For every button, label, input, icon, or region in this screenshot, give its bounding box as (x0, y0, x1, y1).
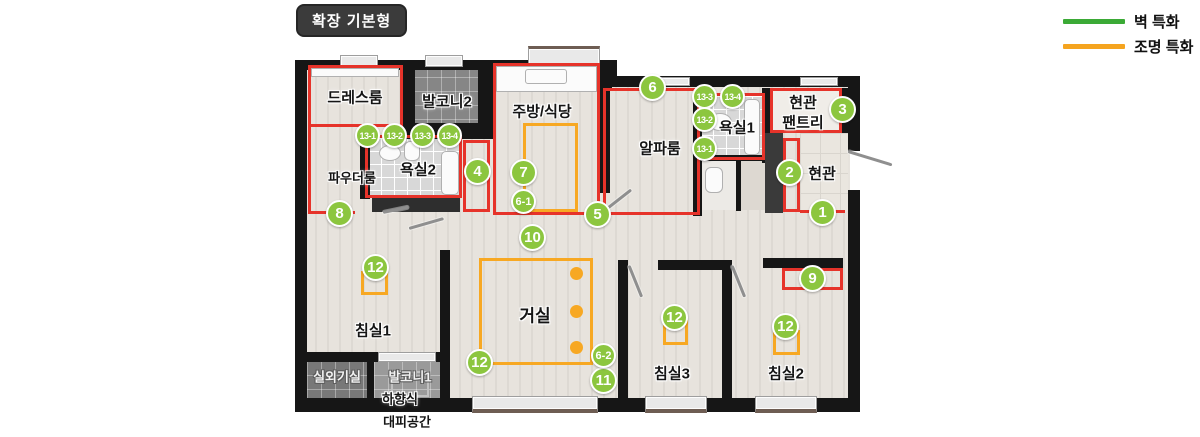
badge-13-4-bath1: 13-4 (720, 84, 745, 109)
wall-right-lower (848, 190, 860, 412)
wall-toilet-closet (736, 161, 741, 211)
badge-4: 4 (464, 158, 491, 185)
entrance-door-swing (848, 150, 893, 166)
badge-12-bed1: 12 (362, 254, 389, 281)
room-label-living: 거실 (519, 302, 550, 327)
wall-feature-swatch (1063, 19, 1125, 24)
window-bed2-bottom (755, 396, 817, 413)
badge-8: 8 (326, 200, 353, 227)
window-bed3-bottom (645, 396, 707, 413)
badge-13-3-bath2: 13-3 (410, 123, 435, 148)
floor-closet (740, 160, 767, 210)
badge-12-bed3: 12 (661, 304, 688, 331)
room-label-dressroom: 드레스룸 (327, 87, 382, 108)
room-label-outdoor-unit: 실외기실 (313, 367, 361, 386)
window-living-bottom (472, 396, 598, 413)
light-feature-label: 조명 특화 (1134, 36, 1193, 57)
room-label-bed2: 침실2 (768, 363, 804, 384)
badge-11: 11 (590, 367, 617, 394)
room-label-kitchen: 주방/식당 (512, 101, 571, 122)
wall-bed2-top (763, 258, 843, 268)
window-balcony2-top (425, 55, 463, 67)
wall-balcony2-kitchen (478, 60, 493, 127)
floor-plan: 드레스룸 발코니2 주방/식당 알파룸 현관 팬트리 욕실1 욕실2 파우더룸 … (295, 55, 860, 413)
badge-13-2-bath2: 13-2 (382, 123, 407, 148)
badge-13-2-bath1: 13-2 (692, 107, 717, 132)
orange-dot-3 (570, 341, 583, 354)
toilet-room-toilet (705, 167, 723, 193)
room-label-evac-line2: 대피공간 (383, 412, 431, 431)
badge-13-3-bath1: 13-3 (692, 84, 717, 109)
badge-13-1-bath1: 13-1 (692, 136, 717, 161)
badge-10: 10 (519, 224, 546, 251)
badge-13-4-bath2: 13-4 (437, 123, 462, 148)
badge-6: 6 (639, 74, 666, 101)
window-pantry-top (800, 77, 838, 86)
orange-dot-2 (570, 305, 583, 318)
plan-notch (603, 55, 860, 76)
badge-12-living: 12 (466, 349, 493, 376)
floor-plan-page: 확장 기본형 벽 특화 조명 특화 (0, 0, 1200, 437)
room-label-evac-line1: 하향식 (382, 389, 418, 408)
wall-dress-balcony2 (403, 60, 415, 127)
wall-feature-label: 벽 특화 (1134, 11, 1180, 32)
red-line-powder-left (308, 127, 311, 214)
wall-outdoor-balcony1 (367, 354, 374, 408)
wall-bed3-bed2 (722, 260, 732, 398)
light-feature-swatch (1063, 44, 1125, 49)
room-label-bed1: 침실1 (355, 320, 391, 341)
badge-2: 2 (776, 159, 803, 186)
badge-12-bed2: 12 (772, 313, 799, 340)
legend-wall-row: 벽 특화 (1063, 11, 1180, 32)
badge-13-1-bath2: 13-1 (355, 123, 380, 148)
badge-7: 7 (510, 159, 537, 186)
room-label-bath2: 욕실2 (400, 159, 436, 180)
room-label-bath1: 욕실1 (719, 117, 755, 138)
room-label-bed3: 침실3 (654, 363, 690, 384)
plan-type-badge: 확장 기본형 (296, 4, 407, 37)
wall-bed3-top (658, 260, 732, 270)
window-bed1-balcony1 (378, 352, 436, 362)
badge-3: 3 (829, 96, 856, 123)
room-label-balcony2: 발코니2 (422, 91, 472, 112)
badge-5: 5 (584, 201, 611, 228)
badge-6-2: 6-2 (591, 343, 616, 368)
wall-bed1-living (440, 250, 450, 398)
room-label-entrance: 현관 (808, 163, 836, 184)
room-label-pantry-line1: 현관 (789, 92, 817, 113)
badge-1: 1 (809, 199, 836, 226)
legend-light-row: 조명 특화 (1063, 36, 1193, 57)
wall-living-bed3 (618, 260, 628, 398)
room-label-balcony1: 발코니1 (388, 367, 431, 386)
badge-9: 9 (799, 265, 826, 292)
orange-dot-1 (570, 267, 583, 280)
room-label-pantry-line2: 팬트리 (782, 112, 823, 133)
room-label-powder: 파우더룸 (328, 168, 376, 187)
badge-6-1: 6-1 (511, 189, 536, 214)
room-label-alpha: 알파룸 (639, 138, 680, 159)
